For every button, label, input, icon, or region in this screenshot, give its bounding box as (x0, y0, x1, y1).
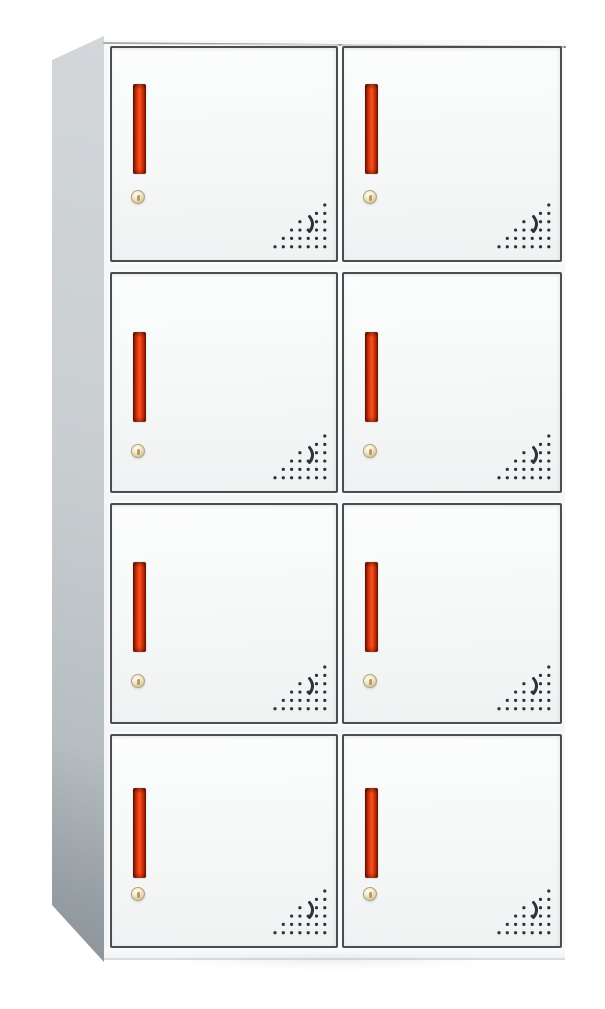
door-handle (365, 332, 378, 422)
keyhole-slit (137, 449, 141, 455)
vent-crescent-icon (310, 903, 313, 918)
locker-door-row2-col1 (110, 272, 338, 493)
vent-holes-icon (272, 431, 327, 481)
vent-crescent-icon (534, 679, 537, 694)
locker-door-row4-col2 (342, 734, 562, 948)
keyhole-slit (137, 892, 141, 898)
vent-holes-icon (272, 886, 327, 936)
vent-crescent-icon (534, 903, 537, 918)
door-handle (365, 84, 378, 174)
keyhole-lock (131, 190, 145, 204)
ground-shadow (90, 958, 570, 972)
door-handle (365, 562, 378, 652)
keyhole-lock (131, 444, 145, 458)
vent-crescent-icon (310, 217, 313, 232)
locker-cabinet (0, 0, 605, 1009)
vent-holes-icon (496, 662, 551, 712)
vent-holes-icon (272, 200, 327, 250)
vent-holes-icon (496, 200, 551, 250)
vent-crescent-icon (534, 448, 537, 463)
cabinet-front (104, 40, 565, 960)
door-handle (133, 788, 146, 878)
keyhole-lock (131, 674, 145, 688)
locker-door-row3-col2 (342, 503, 562, 724)
keyhole-slit (369, 449, 373, 455)
keyhole-slit (369, 195, 373, 201)
locker-door-row4-col1 (110, 734, 338, 948)
keyhole-lock (363, 674, 377, 688)
door-handle (133, 332, 146, 422)
locker-door-row3-col1 (110, 503, 338, 724)
keyhole-lock (363, 190, 377, 204)
keyhole-slit (137, 195, 141, 201)
vent-crescent-icon (310, 679, 313, 694)
vent-holes-icon (496, 886, 551, 936)
keyhole-lock (131, 887, 145, 901)
locker-door-row1-col2 (342, 46, 562, 262)
door-handle (133, 84, 146, 174)
keyhole-slit (137, 679, 141, 685)
cabinet-side-panel (52, 36, 104, 962)
door-handle (365, 788, 378, 878)
keyhole-lock (363, 444, 377, 458)
door-handle (133, 562, 146, 652)
keyhole-lock (363, 887, 377, 901)
vent-holes-icon (272, 662, 327, 712)
vent-crescent-icon (534, 217, 537, 232)
vent-holes-icon (496, 431, 551, 481)
locker-door-row1-col1 (110, 46, 338, 262)
vent-crescent-icon (310, 448, 313, 463)
keyhole-slit (369, 892, 373, 898)
locker-door-row2-col2 (342, 272, 562, 493)
keyhole-slit (369, 679, 373, 685)
